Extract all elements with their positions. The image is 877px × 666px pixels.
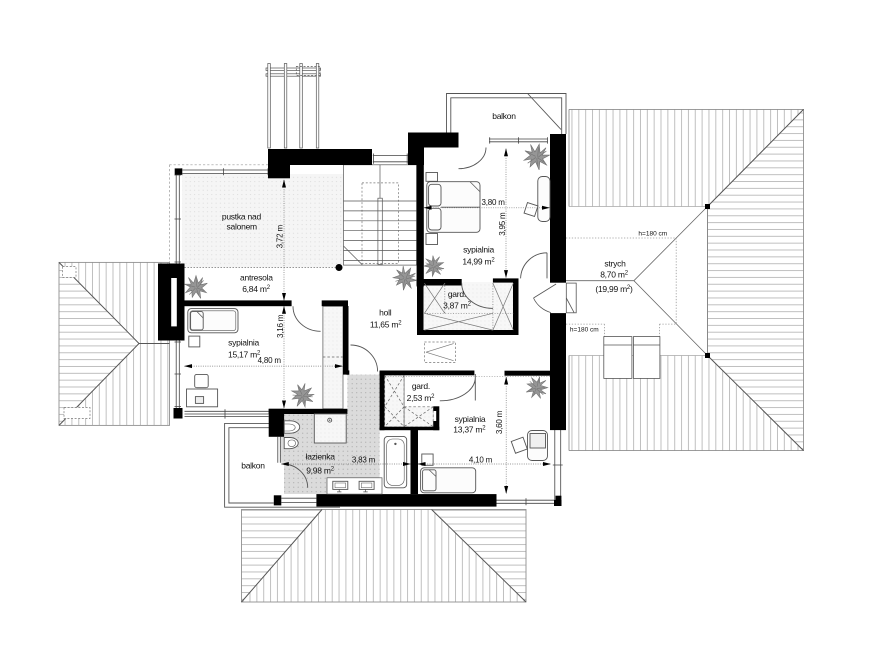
- svg-text:balkon: balkon: [241, 461, 265, 471]
- svg-text:8,70 m2: 8,70 m2: [600, 270, 629, 280]
- svg-text:3,16 m: 3,16 m: [276, 314, 285, 338]
- svg-text:6,84 m2: 6,84 m2: [242, 284, 271, 294]
- svg-text:gard.: gard.: [412, 381, 430, 391]
- svg-text:2,53 m2: 2,53 m2: [407, 393, 436, 403]
- svg-text:3,60 m: 3,60 m: [495, 410, 504, 434]
- svg-text:holl: holl: [379, 308, 392, 318]
- svg-text:13,37 m2: 13,37 m2: [453, 425, 486, 435]
- svg-text:salonem: salonem: [227, 222, 258, 232]
- svg-text:strych: strych: [604, 259, 626, 269]
- svg-text:h=180 cm: h=180 cm: [570, 327, 599, 334]
- svg-text:sypialnia: sypialnia: [228, 338, 259, 348]
- svg-text:3,95 m: 3,95 m: [498, 212, 507, 236]
- svg-text:h=180 cm: h=180 cm: [638, 230, 667, 237]
- svg-text:4,10 m: 4,10 m: [469, 456, 493, 465]
- svg-text:14,99 m2: 14,99 m2: [462, 257, 495, 267]
- svg-text:15,17 m2: 15,17 m2: [228, 349, 261, 359]
- svg-text:3,87 m2: 3,87 m2: [443, 301, 472, 311]
- svg-text:sypialnia: sypialnia: [463, 245, 494, 255]
- svg-text:11,65 m2: 11,65 m2: [370, 320, 402, 330]
- svg-text:9,98 m2: 9,98 m2: [306, 466, 335, 476]
- svg-text:sypialnia: sypialnia: [455, 414, 486, 424]
- svg-text:3,80 m: 3,80 m: [481, 198, 505, 207]
- svg-text:gard.: gard.: [448, 289, 466, 299]
- svg-text:pustka nad: pustka nad: [222, 211, 262, 221]
- svg-text:łazienka: łazienka: [306, 452, 336, 462]
- svg-text:antresola: antresola: [240, 273, 273, 283]
- svg-text:3,83 m: 3,83 m: [352, 456, 376, 465]
- svg-text:3,72 m: 3,72 m: [275, 225, 284, 249]
- svg-text:balkon: balkon: [492, 111, 516, 121]
- svg-text:4,80 m: 4,80 m: [258, 356, 282, 365]
